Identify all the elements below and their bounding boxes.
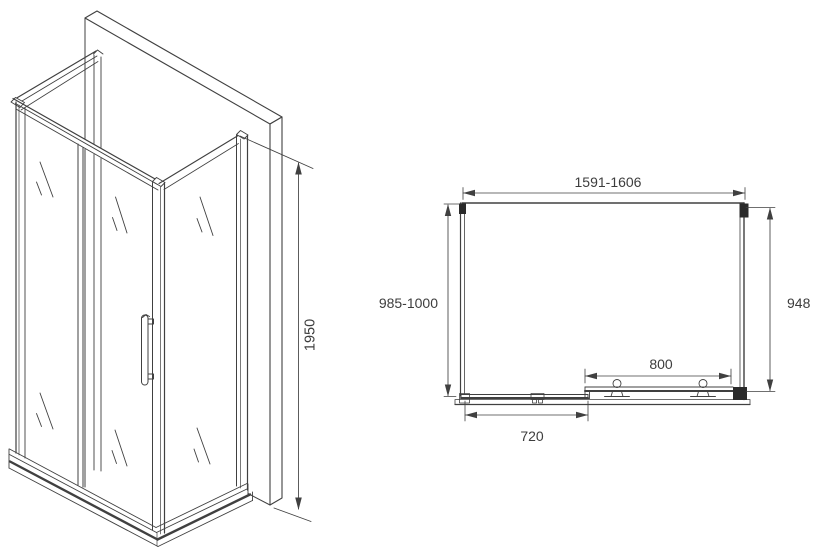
plan-outline-walls xyxy=(459,203,749,400)
right-wall-bracket xyxy=(740,204,749,218)
door-end-stop xyxy=(733,387,747,400)
door-roller-left xyxy=(605,380,630,397)
left-side-panel xyxy=(15,50,103,471)
back-wall-panel xyxy=(85,11,282,505)
fixed-panel-dimension: 720 xyxy=(465,401,588,444)
plan-sliding-door xyxy=(585,380,747,401)
width-dimension-label: 1591-1606 xyxy=(575,174,642,190)
technical-drawing: 1950 xyxy=(0,0,816,555)
door-handle xyxy=(142,315,154,386)
drawing-canvas: 1950 xyxy=(0,0,816,555)
width-dimension: 1591-1606 xyxy=(463,174,745,200)
right-depth-dimension-label: 948 xyxy=(787,295,811,311)
fixed-panel-dimension-label: 720 xyxy=(520,428,544,444)
left-depth-dimension: 985-1000 xyxy=(379,204,461,397)
door-roller-right xyxy=(691,380,716,397)
base-tray xyxy=(9,449,253,547)
door-dimension: 800 xyxy=(585,356,731,384)
isometric-view: 1950 xyxy=(9,11,319,547)
left-wall-bracket xyxy=(459,204,466,215)
door-dimension-label: 800 xyxy=(649,356,673,372)
right-side-panel xyxy=(159,131,248,491)
left-depth-dimension-label: 985-1000 xyxy=(379,295,438,311)
plan-view: 1591-1606 985-1000 948 xyxy=(379,174,811,444)
plan-bottom-track xyxy=(455,400,750,405)
plan-fixed-panel xyxy=(460,394,589,404)
glass-reflection-marks xyxy=(37,162,214,466)
height-dimension-label: 1950 xyxy=(303,319,319,351)
right-depth-dimension: 948 xyxy=(746,208,811,392)
